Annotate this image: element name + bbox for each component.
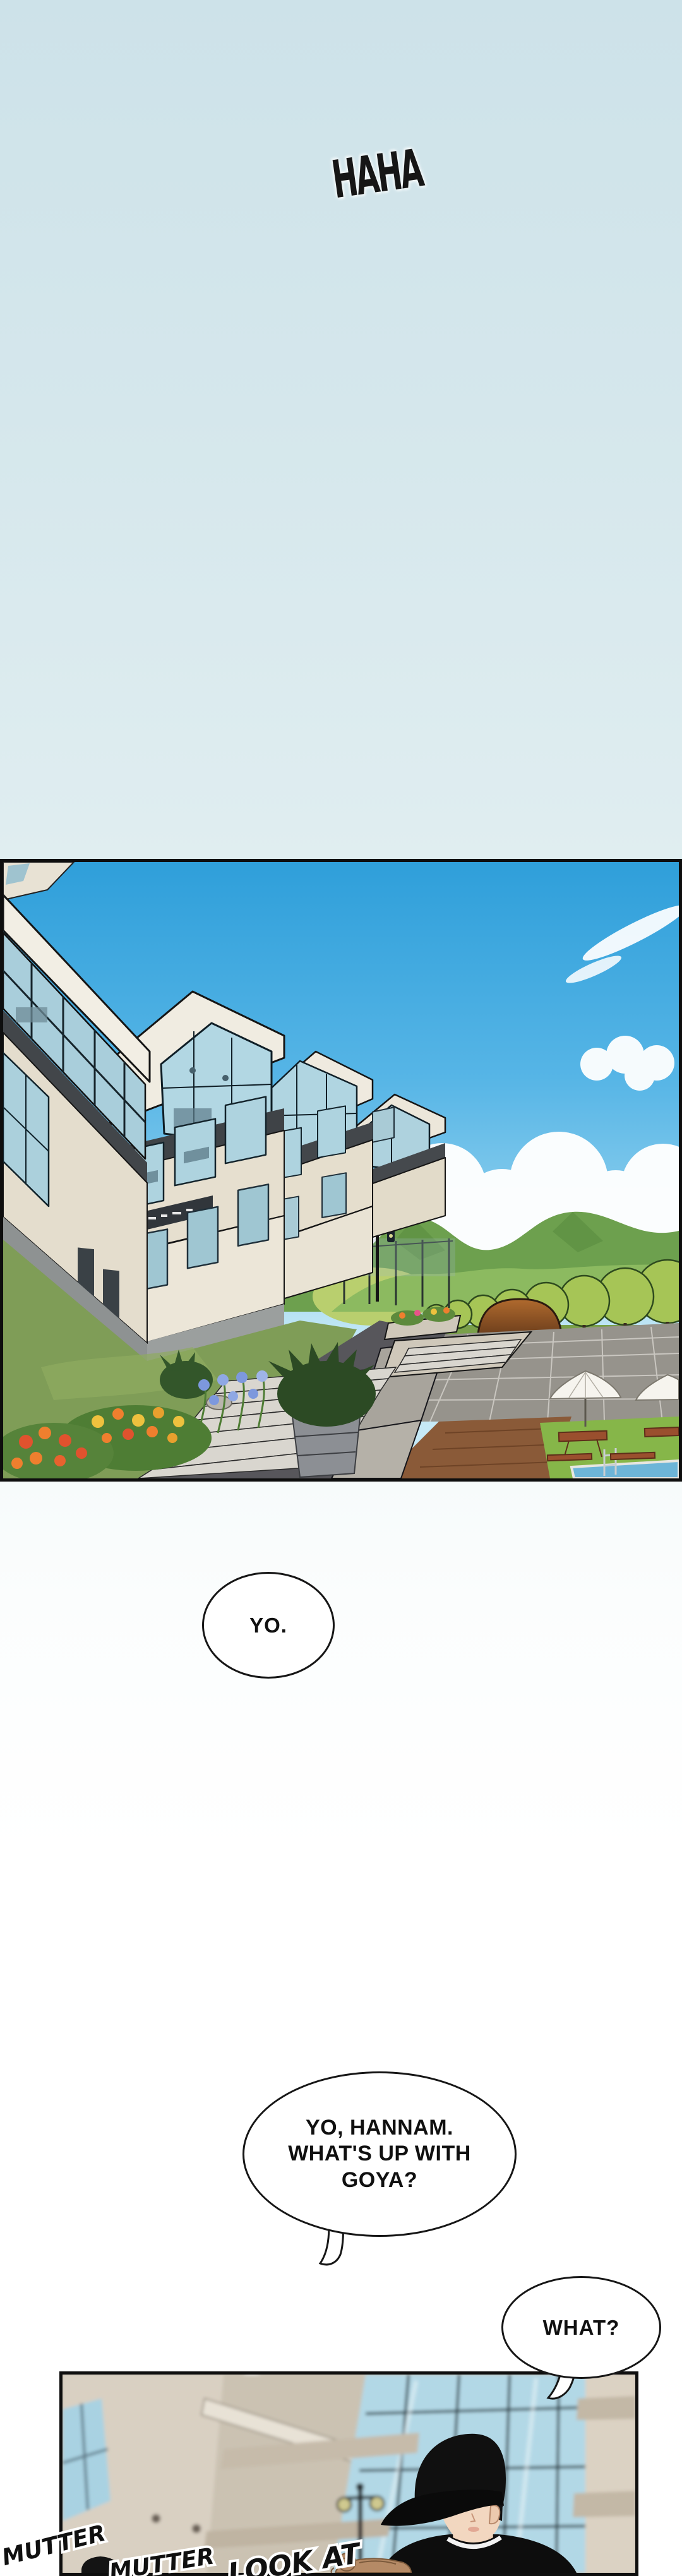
speech-bubble-what: WHAT?	[501, 2276, 661, 2379]
blurred-buildings	[63, 2375, 635, 2573]
speech-text-hannam-line1: YO, HANNAM.	[288, 2115, 471, 2141]
speech-bubble-hannam: YO, HANNAM. WHAT'S UP WITH GOYA?	[242, 2071, 517, 2237]
resort-panel	[0, 859, 682, 1482]
street-panel	[59, 2371, 638, 2576]
webtoon-page: HAHA	[0, 0, 682, 2576]
speech-bubble-yo: YO.	[202, 1572, 335, 1679]
speech-text-yo: YO.	[249, 1614, 287, 1638]
speech-text-hannam-line2: WHAT'S UP WITH	[288, 2141, 471, 2167]
resort-illustration	[3, 862, 679, 1478]
speech-text-hannam-line3: GOYA?	[288, 2167, 471, 2193]
sfx-haha-text: HAHA	[328, 138, 426, 210]
speech-text-what: WHAT?	[543, 2316, 620, 2340]
street-illustration	[63, 2375, 635, 2573]
